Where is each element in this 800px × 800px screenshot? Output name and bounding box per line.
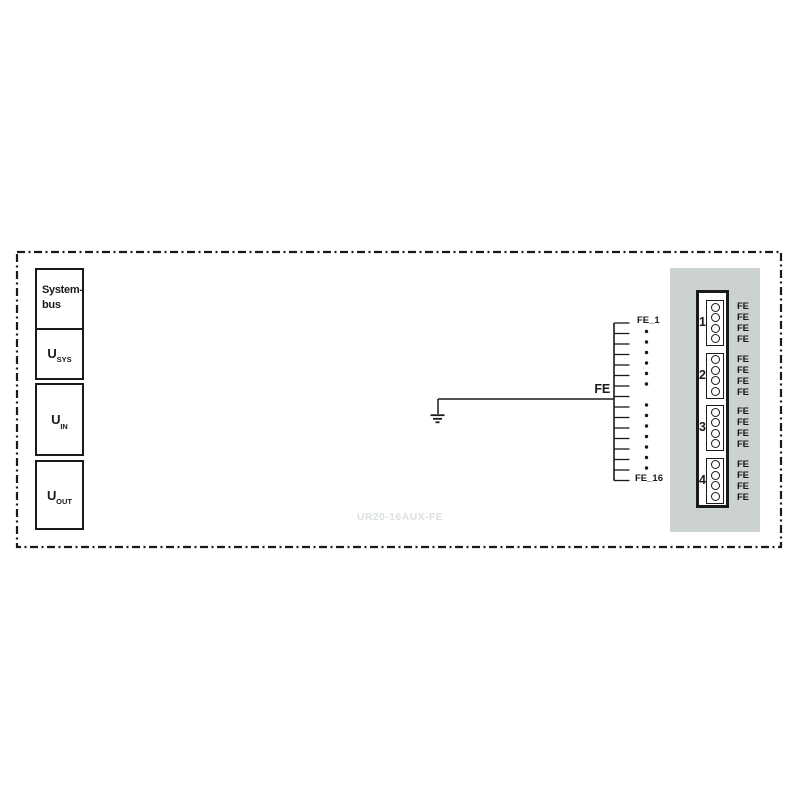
terminal-circle [711,492,720,501]
terminal-circle [711,324,720,333]
fe-pin-label: FE [737,429,765,438]
uin-label: UIN [51,412,68,427]
terminal-circle [711,334,720,343]
fe-junction-label: FE [568,382,610,396]
fe-pin-label-column: FEFEFEFE [737,300,765,346]
terminal-circle [711,303,720,312]
ellipsis-dot [645,340,648,343]
terminal-circle [711,376,720,385]
ellipsis-dot [645,445,648,448]
terminal-circle [711,355,720,364]
ellipsis-dot [645,435,648,438]
fe-pin-label: FE [737,471,765,480]
terminal-block [706,405,724,451]
terminal-circle [711,481,720,490]
ellipsis-dot [645,372,648,375]
fe-pin-label: FE [737,355,765,364]
connector-panel: 1FEFEFEFE2FEFEFEFE3FEFEFEFE4FEFEFEFE [670,268,760,532]
systembus-usys-box: System-bus USYS [35,268,84,380]
terminal-circle [711,418,720,427]
terminal-circle [711,429,720,438]
terminal-block [706,353,724,399]
ellipsis-dot [645,361,648,364]
fe-pin-label: FE [737,313,765,322]
ellipsis-dot [645,351,648,354]
fe-pin-label: FE [737,440,765,449]
uout-box: UOUT [35,460,84,530]
terminal-circle [711,408,720,417]
fe-first-pin-label: FE_1 [637,315,660,326]
connector-box: 1FEFEFEFE2FEFEFEFE3FEFEFEFE4FEFEFEFE [696,290,729,508]
fe-pin-label: FE [737,366,765,375]
module-name-watermark: UR20-16AUX-FE [300,511,500,523]
boundary-dash-border [17,252,781,547]
fe-pin-label: FE [737,302,765,311]
fe-pin-label: FE [737,493,765,502]
ellipsis-dot [645,456,648,459]
terminal-circle [711,387,720,396]
fe-pin-label: FE [737,407,765,416]
terminal-block [706,458,724,504]
ellipsis-dot [645,382,648,385]
fe-pin-label: FE [737,482,765,491]
ellipsis-dot [645,330,648,333]
terminal-circle [711,460,720,469]
terminal-circle [711,471,720,480]
uout-label: UOUT [47,488,72,503]
ellipsis-dot [645,424,648,427]
fe-pin-label: FE [737,324,765,333]
usys-label: USYS [47,346,71,361]
fe-pin-label: FE [737,418,765,427]
fe-pin-label-column: FEFEFEFE [737,353,765,399]
terminal-block [706,300,724,346]
terminal-circle [711,439,720,448]
fe-pin-label-column: FEFEFEFE [737,405,765,451]
ellipsis-dot [645,414,648,417]
ellipsis-dot [645,466,648,469]
fe-pin-label: FE [737,377,765,386]
fe-pin-label-column: FEFEFEFE [737,458,765,504]
ellipsis-dot [645,403,648,406]
fe-pin-label: FE [737,460,765,469]
terminal-circle [711,313,720,322]
wiring-diagram-page: System-bus USYS UIN UOUT FE FE_1 FE_16 1… [0,0,800,800]
systembus-label: System-bus [37,270,82,330]
terminal-circle [711,366,720,375]
fe-last-pin-label: FE_16 [635,473,663,484]
uin-box: UIN [35,383,84,456]
fe-pin-label: FE [737,388,765,397]
fe-pin-label: FE [737,335,765,344]
